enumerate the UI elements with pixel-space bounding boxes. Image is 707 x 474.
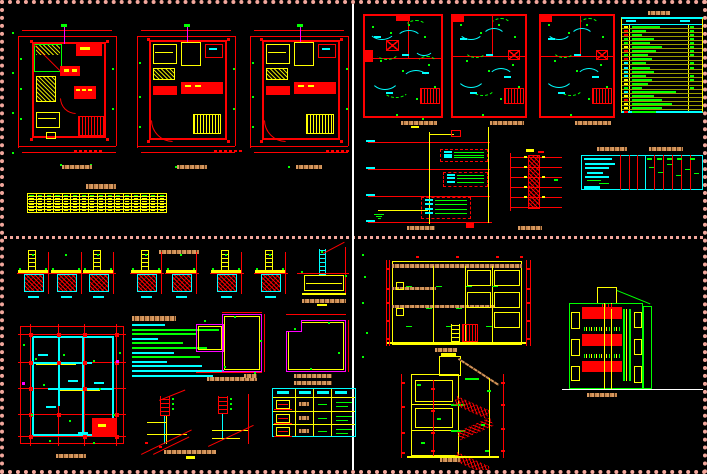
- top-dim-ticks: [416, 256, 419, 258]
- side-elevation: [564, 284, 666, 396]
- side-window: [634, 366, 642, 383]
- lintel-marks: [406, 286, 412, 287]
- elevation-ground-line: [562, 389, 707, 390]
- side-wing-outline: [643, 306, 652, 389]
- room-outline: [494, 292, 520, 308]
- building-cross-section: [386, 256, 534, 356]
- stair-ladder: [451, 324, 460, 342]
- dim-line: [503, 374, 504, 458]
- roof-slab-hatch: [392, 264, 522, 268]
- dim-ticks: [501, 382, 505, 384]
- cad-drawing-canvas: [0, 0, 707, 474]
- dim-ticks: [401, 382, 405, 384]
- balcony: [582, 361, 622, 372]
- room-outline: [467, 270, 491, 286]
- room-outline: [494, 270, 520, 286]
- dim-line: [401, 374, 402, 458]
- stair-post: [489, 378, 490, 458]
- side-window: [634, 312, 642, 328]
- accent-strip-frame: [626, 309, 627, 381]
- center-dim: [433, 380, 434, 456]
- window-mark: [396, 308, 404, 316]
- cross-section-caption: [435, 348, 457, 352]
- railing-hatch: [584, 327, 620, 331]
- staircase-section: [401, 354, 507, 464]
- sheet-sections-elevation: [4, 4, 703, 470]
- railing-hatch: [584, 354, 620, 358]
- dim-line: [386, 260, 387, 346]
- room-outline: [494, 312, 520, 328]
- room-outline: [415, 408, 453, 428]
- roof-slope: [458, 358, 499, 386]
- tick-marks: [362, 254, 364, 256]
- dim-line: [526, 260, 527, 346]
- room-outline: [467, 292, 491, 308]
- balcony: [582, 334, 622, 346]
- roof-edge-hatch: [602, 304, 614, 309]
- window: [571, 312, 580, 329]
- stair-hatch: [462, 324, 478, 342]
- window: [571, 339, 580, 356]
- stair-window-strip: [604, 303, 605, 389]
- side-elevation-caption: [587, 393, 617, 397]
- tick-marks: [417, 384, 421, 386]
- staircase-section-caption: [440, 458, 460, 462]
- dim-ticks: [431, 388, 435, 390]
- ground-line: [386, 342, 526, 344]
- window: [571, 366, 580, 381]
- stair-tower: [597, 287, 617, 304]
- accent-strip: [623, 309, 625, 381]
- window-mark: [396, 282, 404, 290]
- side-window: [634, 339, 642, 355]
- interior-wall: [433, 266, 434, 342]
- dim-ticks: [386, 268, 390, 270]
